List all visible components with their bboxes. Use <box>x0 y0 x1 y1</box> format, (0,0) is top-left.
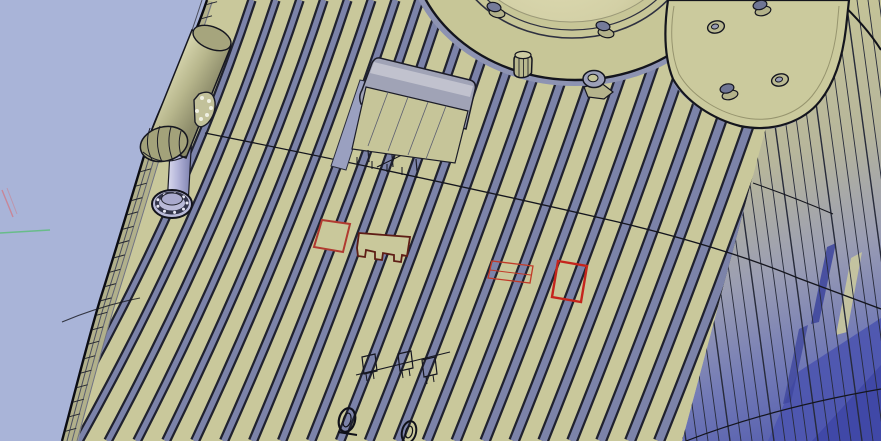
cad-viewport-stage: 3D CAD viewport - submarine deck model, … <box>0 0 881 441</box>
cad-3d-viewport[interactable]: 3D CAD viewport - submarine deck model, … <box>0 0 881 441</box>
